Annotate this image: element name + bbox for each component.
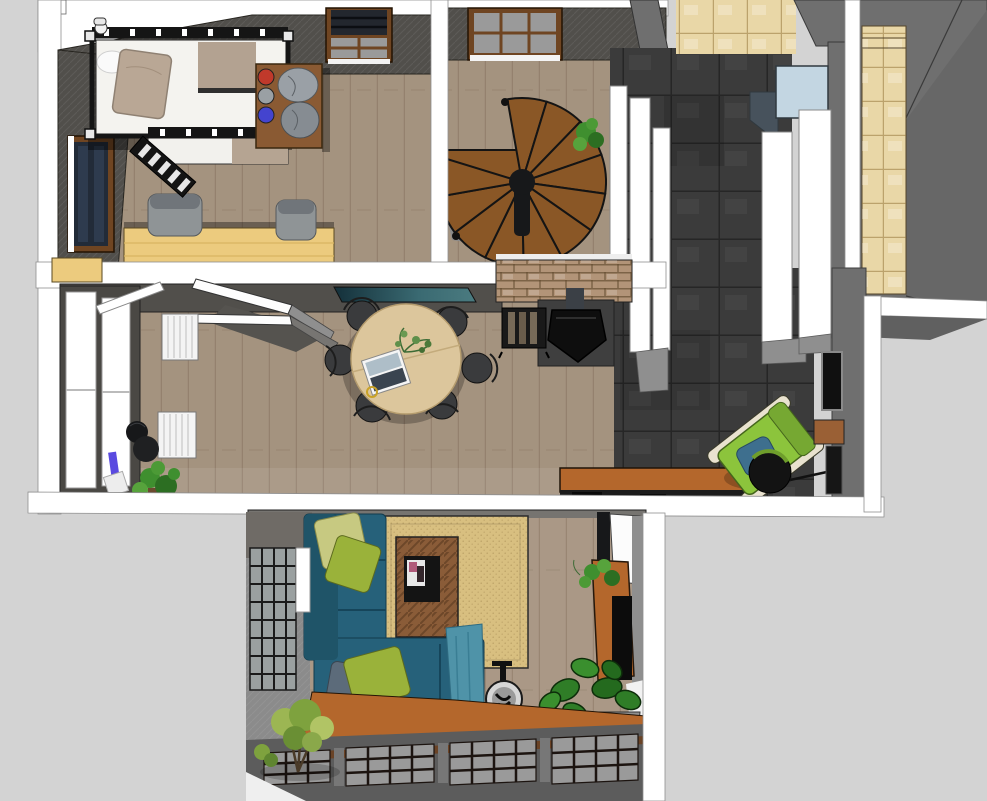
- helmet-gray: [258, 88, 274, 104]
- storage-bag: [281, 102, 319, 138]
- platform-corner: [52, 258, 102, 282]
- bedroom-roof-window: [326, 8, 392, 64]
- dresser: [256, 64, 330, 152]
- bedroom-armchair-1: [148, 194, 202, 236]
- living-room: [246, 510, 646, 801]
- wall-right-strip: [864, 296, 881, 512]
- coffee-table: [396, 537, 458, 637]
- helmet-red: [258, 69, 274, 85]
- bedroom-armchair-2: [276, 200, 316, 240]
- wall-bath-sideroom: [845, 0, 860, 302]
- bedroom-side-window: [68, 136, 114, 252]
- hall-roof-window: [468, 8, 562, 61]
- helmet-blue: [258, 107, 274, 123]
- radiator: [158, 412, 196, 458]
- radiator: [162, 314, 198, 360]
- floorplan-render: [0, 0, 987, 801]
- side-desk: [814, 420, 844, 444]
- wall-living-right: [643, 513, 665, 801]
- bedroom: [58, 8, 432, 270]
- wall-bed-stairs: [431, 0, 448, 268]
- storage-bag: [278, 68, 318, 102]
- stair-center-pole: [509, 169, 535, 195]
- bed-pillow: [112, 49, 172, 120]
- throw-blanket: [446, 624, 484, 712]
- floorplan-viewport[interactable]: [0, 0, 987, 801]
- leaning-frame: [826, 446, 842, 494]
- wall-frame: [822, 352, 842, 410]
- side-room: [858, 0, 987, 316]
